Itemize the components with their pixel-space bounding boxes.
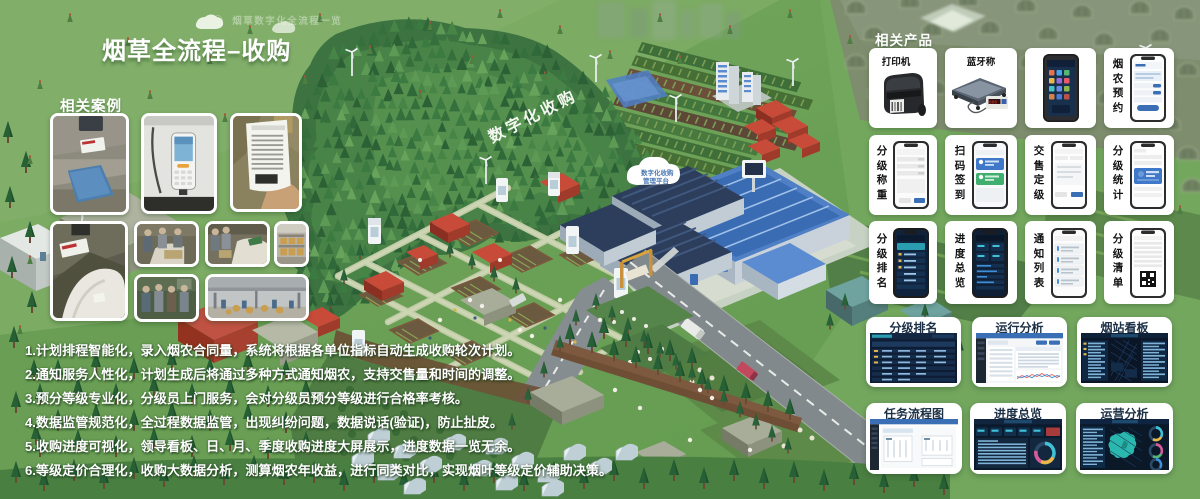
svg-text:数字化收购: 数字化收购 (641, 168, 674, 177)
svg-text:管理平台: 管理平台 (643, 176, 670, 185)
svg-text:888: 888 (989, 100, 997, 106)
